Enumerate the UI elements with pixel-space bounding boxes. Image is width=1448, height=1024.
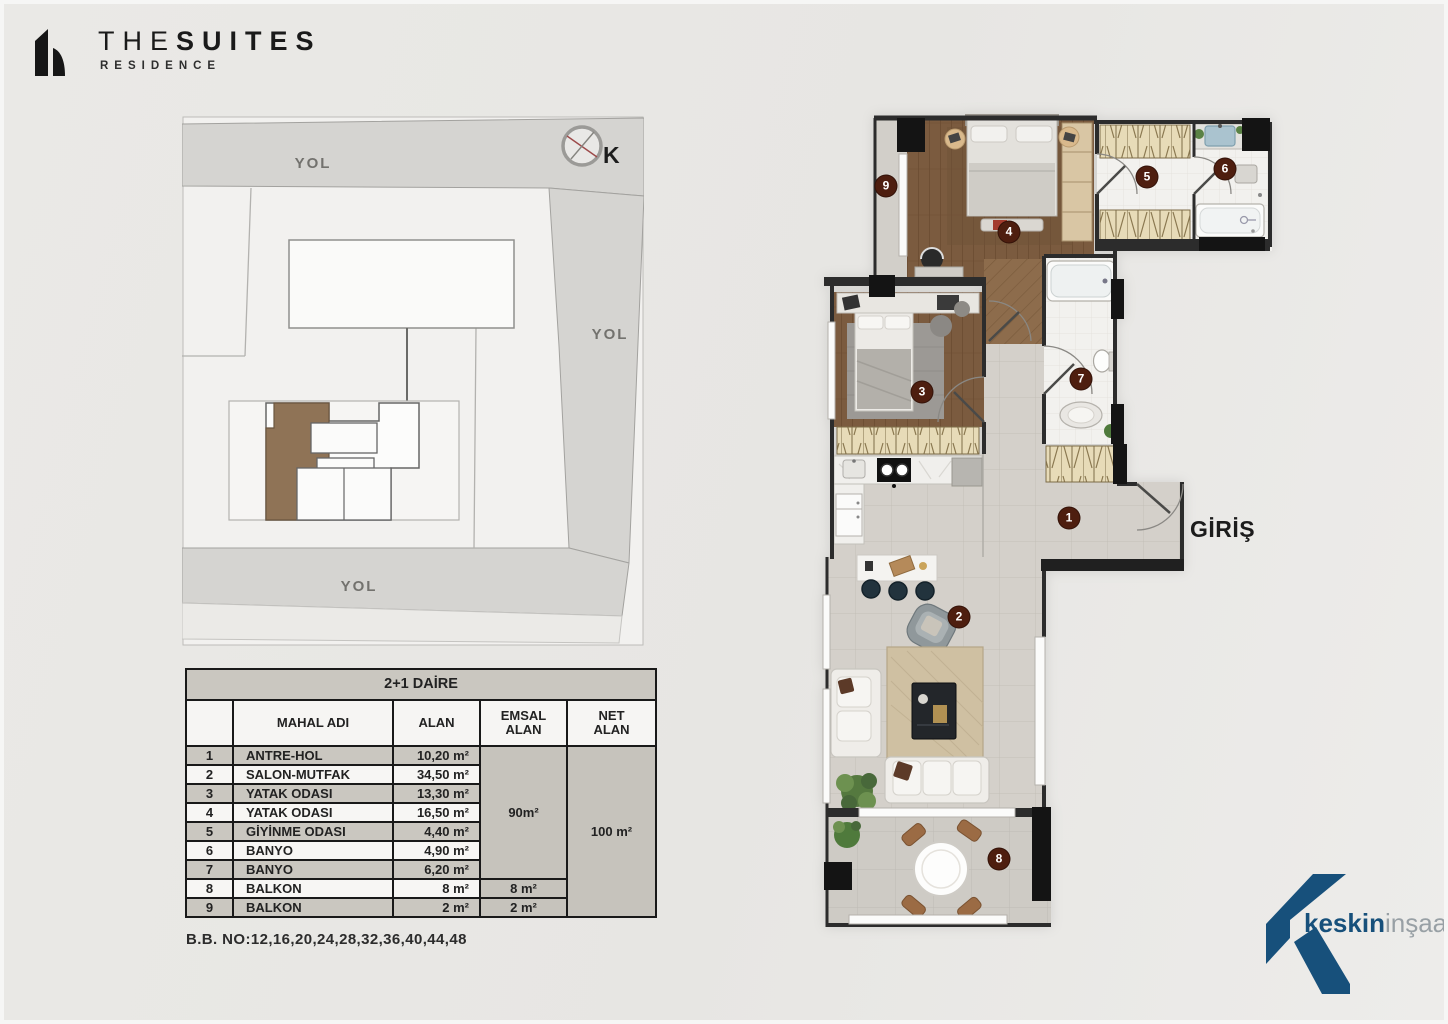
- col-net: NETALAN: [567, 700, 656, 746]
- emsal-cell: 2 m²: [480, 898, 567, 917]
- room-marker: 2: [948, 606, 971, 629]
- builder-name-light: inşaat: [1385, 908, 1448, 938]
- road-label-top: YOL: [295, 155, 332, 172]
- brand-title: THESUITES: [98, 26, 322, 57]
- room-marker: 7: [1070, 368, 1093, 391]
- compass-icon: [563, 127, 601, 165]
- buildings-icon: [32, 26, 70, 78]
- col-name: MAHAL ADI: [233, 700, 393, 746]
- room-marker: 9: [875, 175, 898, 198]
- road-label-bottom: YOL: [341, 578, 378, 595]
- room-marker: 8: [988, 848, 1011, 871]
- table-header-row: MAHAL ADI ALAN EMSALALAN NETALAN: [186, 700, 656, 746]
- room-marker: 5: [1136, 166, 1159, 189]
- col-area: ALAN: [393, 700, 480, 746]
- room-marker: 6: [1214, 158, 1237, 181]
- compass-label: K: [603, 142, 620, 168]
- room-marker: 4: [998, 221, 1021, 244]
- room-marker: 3: [911, 381, 934, 404]
- building-part: [311, 423, 377, 453]
- entrance-label: GİRİŞ: [1190, 516, 1255, 543]
- road-label-right: YOL: [592, 326, 629, 343]
- room-marker: 1: [1058, 507, 1081, 530]
- builder-name-bold: keskin: [1304, 908, 1385, 938]
- brochure-page: THESUITES RESIDENCE K YOL YOL YOL: [0, 0, 1448, 1024]
- emsal-cell: 8 m²: [480, 879, 567, 898]
- emsal-total-cell: 90m²: [480, 746, 567, 879]
- site-plan: K YOL YOL YOL: [182, 116, 644, 646]
- building-upper: [289, 240, 514, 328]
- net-total-cell: 100 m²: [567, 746, 656, 917]
- col-no: [186, 700, 233, 746]
- table-row: 1ANTRE-HOL10,20 m² 90m² 100 m²: [186, 746, 656, 765]
- brand-title-light: THE: [98, 26, 176, 56]
- unit-area-table: 2+1 DAİRE MAHAL ADI ALAN EMSALALAN NETAL…: [185, 668, 657, 918]
- unit-numbers-note: B.B. NO:12,16,20,24,28,32,36,40,44,48: [186, 931, 467, 948]
- table-title: 2+1 DAİRE: [186, 669, 656, 700]
- brand-subtitle: RESIDENCE: [100, 60, 322, 72]
- col-emsal: EMSALALAN: [480, 700, 567, 746]
- builder-logo: keskininşaat: [1258, 872, 1448, 1022]
- brand-title-bold: SUITES: [176, 26, 322, 56]
- brand-logo: THESUITES RESIDENCE: [32, 26, 322, 78]
